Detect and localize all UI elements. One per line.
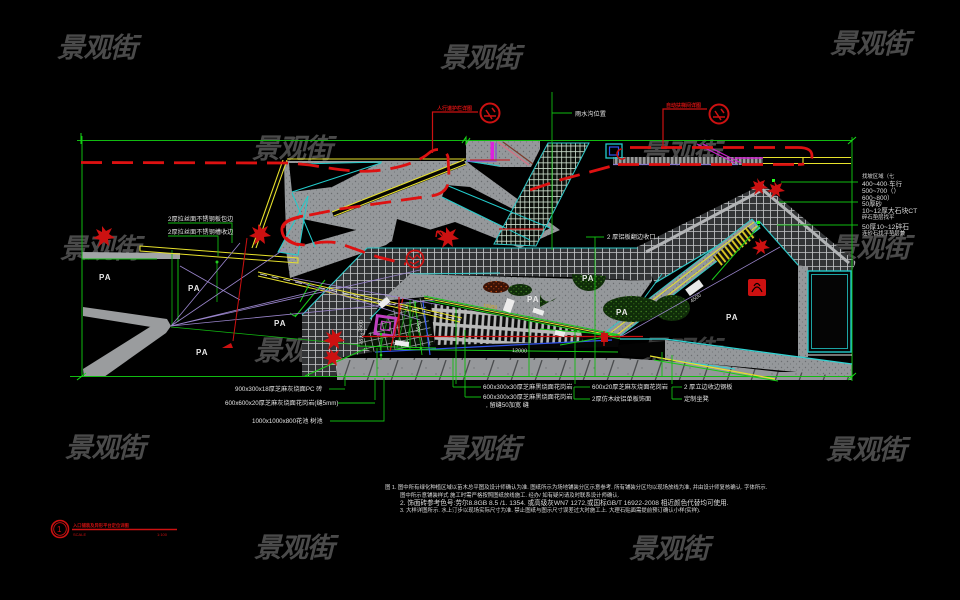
svg-text:1:100: 1:100 — [157, 532, 168, 537]
svg-text:2. 饰面砖参考色号:劳尔8.8GB 8.5 /1. 1: 2. 饰面砖参考色号:劳尔8.8GB 8.5 /1. 1354. 或高级灰WN7… — [400, 498, 729, 507]
svg-text:人行道护栏详图: 人行道护栏详图 — [436, 105, 472, 112]
svg-text:10~12厚大石块CT: 10~12厚大石块CT — [862, 206, 917, 215]
svg-text:连砂石找平垫层兼: 连砂石找平垫层兼 — [862, 229, 906, 237]
svg-text:600x300x30厚芝麻黑烧面花岗岩: 600x300x30厚芝麻黑烧面花岗岩 — [483, 393, 572, 401]
svg-text:自动扶梯间详图: 自动扶梯间详图 — [666, 102, 701, 109]
svg-text:PA: PA — [188, 284, 201, 293]
svg-text:入口铺装及异形平台定位详图: 入口铺装及异形平台定位详图 — [72, 522, 130, 529]
svg-text:2厚拉丝面不锈钢板包边: 2厚拉丝面不锈钢板包边 — [168, 215, 234, 223]
svg-text:12000: 12000 — [512, 348, 527, 355]
svg-text:1: 1 — [57, 525, 62, 534]
svg-text:景观街: 景观街 — [440, 433, 525, 464]
svg-text:图中所示意铺装样式 施工时需严格按照图纸放线施工. 经办/: 图中所示意铺装样式 施工时需严格按照图纸放线施工. 经办/ 如有疑问请及时联系设… — [400, 491, 619, 499]
svg-text:2厚拉丝面不锈钢槽收边: 2厚拉丝面不锈钢槽收边 — [168, 228, 234, 236]
svg-text:600x300x30厚芝麻黑烧面花岗岩: 600x300x30厚芝麻黑烧面花岗岩 — [483, 383, 572, 391]
svg-text:1000x1000x800花池 树池: 1000x1000x800花池 树池 — [252, 417, 323, 425]
svg-text:50厚10~12碎石: 50厚10~12碎石 — [862, 222, 909, 231]
svg-text:400~400·车行: 400~400·车行 — [862, 179, 903, 188]
svg-text:3500: 3500 — [358, 320, 365, 332]
svg-text:找坡区域（七: 找坡区域（七 — [862, 172, 895, 180]
svg-text:景观街: 景观街 — [65, 432, 150, 463]
svg-text:SCALE: SCALE — [73, 532, 86, 537]
svg-text:景观街: 景观街 — [440, 42, 525, 73]
svg-text:景观街: 景观街 — [629, 533, 714, 564]
svg-text:PA: PA — [616, 308, 629, 317]
svg-text:景观街: 景观街 — [57, 32, 142, 63]
svg-text:PA: PA — [527, 295, 540, 304]
svg-text:定制坐凳: 定制坐凳 — [684, 395, 709, 403]
svg-text:景观街: 景观街 — [830, 28, 915, 59]
svg-text:PA: PA — [274, 319, 287, 328]
svg-text:景观街: 景观街 — [254, 532, 339, 563]
svg-text:900x300x18厚芝麻灰烧面PC 砖: 900x300x18厚芝麻灰烧面PC 砖 — [235, 385, 322, 393]
svg-text:2厚仿木纹铝单板饰面: 2厚仿木纹铝单板饰面 — [592, 395, 651, 403]
svg-text:, 留缝50加宽 缝: , 留缝50加宽 缝 — [486, 401, 529, 409]
svg-text:3. 大样详图所示. 水上汀步以现场实际尺寸为准. 禁止图纸: 3. 大样详图所示. 水上汀步以现场实际尺寸为准. 禁止图纸与图示尺寸误差过大时… — [400, 506, 700, 514]
svg-text:图 1. 图中所有绿化种植区域以苗木总平图及设计师确认为准.: 图 1. 图中所有绿化种植区域以苗木总平图及设计师确认为准. 图纸所示为场地铺装… — [385, 483, 767, 491]
svg-text:600x20厚芝麻灰烧面花岗岩: 600x20厚芝麻灰烧面花岗岩 — [592, 383, 668, 391]
svg-text:500~700（）: 500~700（） — [862, 187, 900, 195]
svg-text:碎石垫层找平: 碎石垫层找平 — [862, 213, 895, 221]
svg-text:600x600x20厚芝麻灰烧面花岗岩(缝5mm): 600x600x20厚芝麻灰烧面花岗岩(缝5mm) — [225, 399, 338, 407]
svg-text:雨水沟位置: 雨水沟位置 — [575, 110, 606, 118]
svg-text:PA: PA — [582, 274, 595, 283]
svg-text:2 厚铝板翻边收口: 2 厚铝板翻边收口 — [607, 233, 655, 241]
svg-text:景观街: 景观街 — [826, 434, 911, 465]
svg-text:50厚砂: 50厚砂 — [862, 199, 882, 208]
svg-text:PA: PA — [726, 313, 739, 322]
svg-text:PA: PA — [196, 348, 209, 357]
svg-text:PA: PA — [99, 273, 112, 282]
svg-text:2 厚立边收边钢板: 2 厚立边收边钢板 — [684, 383, 732, 391]
